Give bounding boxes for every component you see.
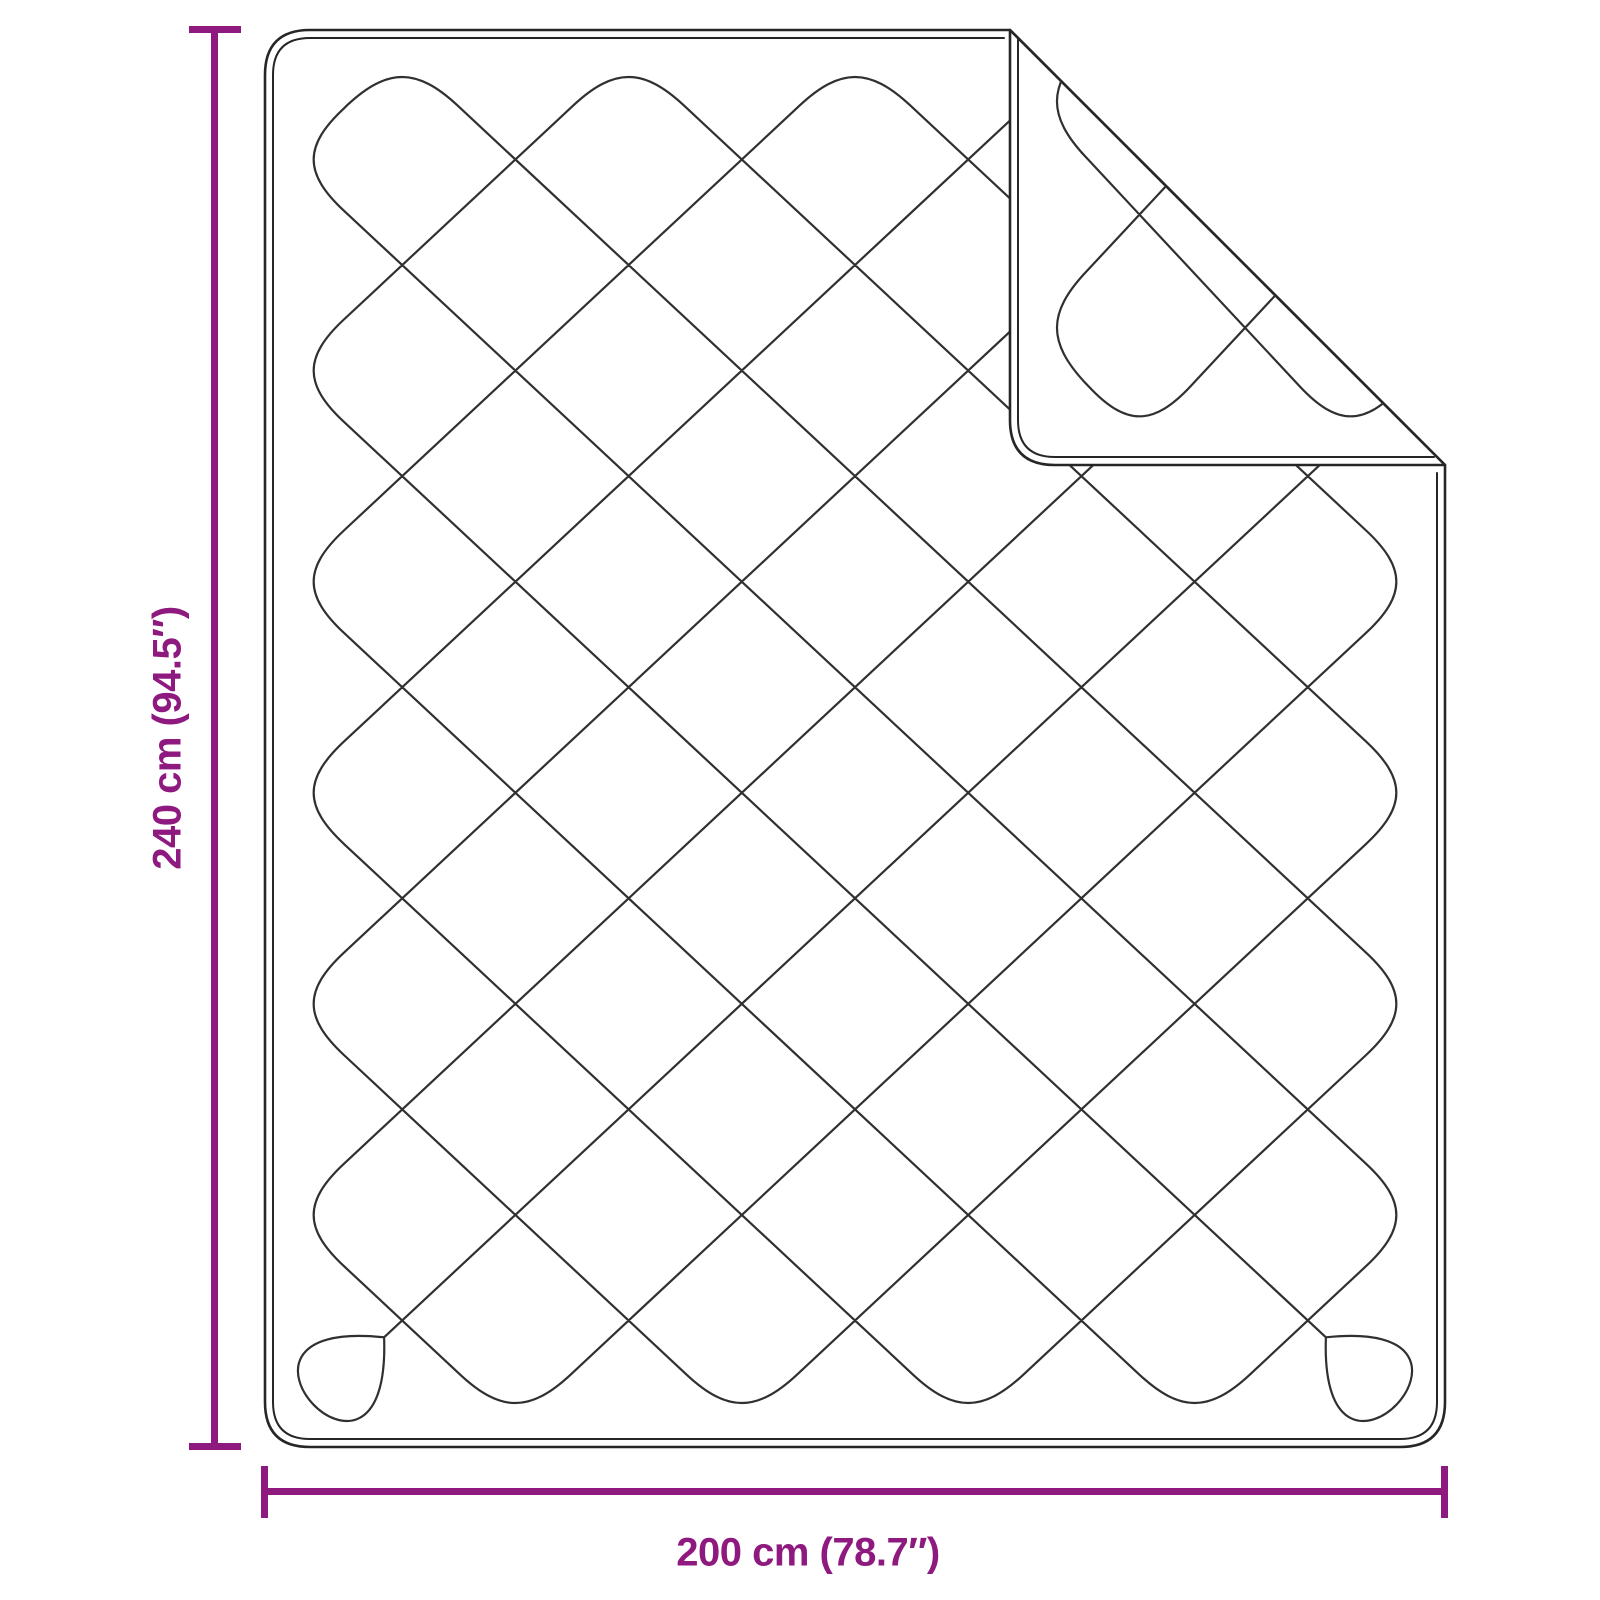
width-dimension-line	[265, 1488, 1445, 1495]
width-dimension-cap-left	[261, 1466, 268, 1518]
width-dimension-cap-right	[1441, 1466, 1448, 1518]
height-label: 240 cm (94.5″)	[146, 606, 191, 869]
blanket-body-outline	[265, 30, 1445, 1447]
blanket-drawing	[0, 0, 1600, 1600]
height-dimension-cap-top	[189, 26, 241, 33]
height-dimension-cap-bottom	[189, 1443, 241, 1450]
dimension-diagram: 240 cm (94.5″) 200 cm (78.7″)	[0, 0, 1600, 1600]
height-dimension-line	[211, 29, 218, 1447]
width-label: 200 cm (78.7″)	[676, 1531, 939, 1576]
fold-flap-outline	[1010, 30, 1445, 465]
